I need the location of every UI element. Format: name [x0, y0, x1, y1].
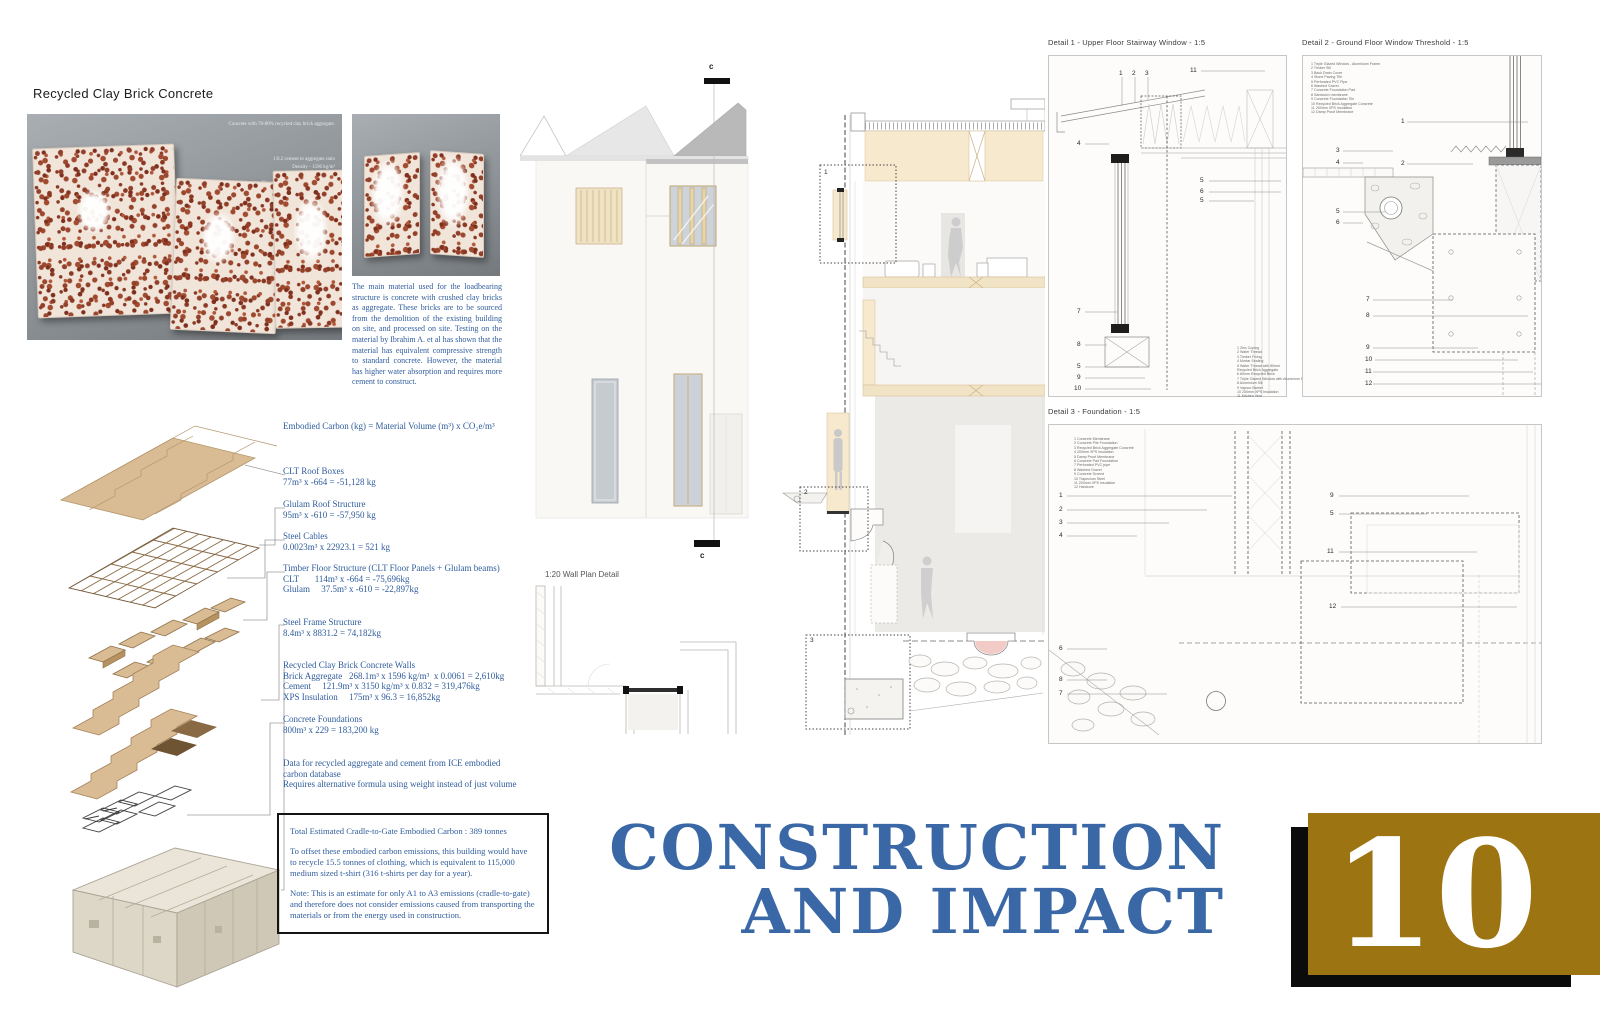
detail1-callout: 4	[1077, 140, 1081, 147]
detail2-callout: 11	[1365, 368, 1372, 375]
carbon-item-label: Concrete Foundations	[283, 714, 543, 725]
wall-plan-label: 1:20 Wall Plan Detail	[545, 570, 619, 579]
detail3-callout: 5	[1330, 510, 1334, 517]
embodied-carbon-formula: Embodied Carbon (kg) = Material Volume (…	[283, 421, 543, 432]
detail2-callout: 5	[1336, 208, 1340, 215]
detail1-callout: 9	[1077, 374, 1081, 381]
embodied-carbon-summary-box: Total Estimated Cradle-to-Gate Embodied …	[277, 813, 549, 934]
detail1-callout: 10	[1074, 385, 1081, 392]
carbon-item-value: CLT 114m³ x -664 = -75,696kg	[283, 574, 543, 585]
building-section-drawing	[775, 95, 1045, 803]
carbon-item-foundations: Concrete Foundations 800m³ x 229 = 183,2…	[283, 714, 543, 735]
carbon-data-note-line: carbon database	[283, 769, 538, 780]
carbon-item-label: Recycled Clay Brick Concrete Walls	[283, 660, 543, 671]
carbon-item-value: 8.4m³ x 8831.2 = 74,182kg	[283, 628, 543, 639]
photo-caption: Concrete with 70-80% recycled clay brick…	[175, 121, 335, 128]
detail3-callout: 4	[1059, 532, 1063, 539]
carbon-item-label: CLT Roof Boxes	[283, 466, 543, 477]
carbon-item-clt-roof: CLT Roof Boxes 77m³ x -664 = -51,128 kg	[283, 466, 543, 487]
detail2-callout: 1	[1401, 118, 1405, 125]
detail2-callout: 2	[1401, 160, 1405, 167]
material-photo-side	[352, 114, 500, 276]
detail2-callout: 3	[1336, 147, 1340, 154]
detail1-title: Detail 1 - Upper Floor Stairway Window -…	[1048, 38, 1205, 47]
detail1-callout: 11	[1190, 67, 1197, 74]
detail1-callout: 1	[1119, 70, 1123, 77]
elevation-drawing	[520, 56, 765, 564]
carbon-item-value: XPS Insulation 175m³ x 96.3 = 16,852kg	[283, 692, 543, 703]
section-callout-1: 1	[824, 169, 828, 176]
detail3-title: Detail 3 - Foundation - 1:5	[1048, 407, 1140, 416]
detail3-callout: 9	[1330, 492, 1334, 499]
detail3-callout: 2	[1059, 506, 1063, 513]
detail2-title: Detail 2 - Ground Floor Window Threshold…	[1302, 38, 1469, 47]
carbon-item-value: 95m³ x -610 = -57,950 kg	[283, 510, 543, 521]
detail1-callout: 3	[1145, 70, 1149, 77]
detail3-legend: 1 Concrete Membrane2 Concrete Pile Found…	[1074, 437, 1189, 490]
carbon-data-note-line: Requires alternative formula using weigh…	[283, 779, 538, 790]
detail3-callout: 8	[1059, 676, 1063, 683]
brick-sample-2	[170, 178, 283, 334]
carbon-item-value: Glulam 37.5m³ x -610 = -22,897kg	[283, 584, 543, 595]
carbon-item-label: Steel Frame Structure	[283, 617, 543, 628]
summary-total: Total Estimated Cradle-to-Gate Embodied …	[290, 826, 536, 837]
carbon-data-note-line: Data for recycled aggregate and cement f…	[283, 758, 538, 769]
carbon-item-timber-floor: Timber Floor Structure (CLT Floor Panels…	[283, 563, 543, 595]
page-title-line2: AND IMPACT	[560, 882, 1225, 942]
page-number-plate: 10	[1308, 813, 1600, 975]
section-callout-3: 3	[810, 637, 814, 644]
section-callout-2: 2	[804, 489, 808, 496]
section-marker-top: c	[709, 62, 713, 71]
carbon-item-value: 77m³ x -664 = -51,128 kg	[283, 477, 543, 488]
detail1-callout: 2	[1132, 70, 1136, 77]
detail3-callout: 1	[1059, 492, 1063, 499]
detail1-callout: 6	[1200, 188, 1204, 195]
carbon-item-value: Brick Aggregate 268.1m³ x 1596 kg/m³ x 0…	[283, 671, 543, 682]
carbon-item-value: Cement 121.9m³ x 3150 kg/m³ x 0.832 = 31…	[283, 681, 543, 692]
carbon-item-label: Timber Floor Structure (CLT Floor Panels…	[283, 563, 543, 574]
brick-sample-1	[32, 144, 180, 319]
detail1-callout: 5	[1200, 177, 1204, 184]
detail2-callout: 6	[1336, 219, 1340, 226]
detail2-callout: 9	[1366, 344, 1370, 351]
carbon-item-value: 0.0023m³ x 22923.1 = 521 kg	[283, 542, 543, 553]
brick-sample-5	[430, 150, 484, 258]
exploded-axonometric-drawing	[55, 420, 285, 990]
section-marker-bottom: c	[700, 551, 704, 560]
detail1-callout: 8	[1077, 341, 1081, 348]
carbon-data-note: Data for recycled aggregate and cement f…	[283, 758, 538, 790]
summary-note: Note: This is an estimate for only A1 to…	[290, 888, 536, 921]
summary-offset: To offset these embodied carbon emission…	[290, 846, 536, 879]
detail2-callout: 12	[1365, 380, 1372, 387]
carbon-item-concrete-walls: Recycled Clay Brick Concrete Walls Brick…	[283, 660, 543, 702]
detail3-callout: 3	[1059, 519, 1063, 526]
detail2-legend: 1 Triple Glazed Window - Aluminium Frame…	[1311, 62, 1411, 115]
photo-spec-ratio: 1:0.2 cement to aggregate ratio	[185, 156, 335, 163]
material-description: The main material used for the loadbeari…	[352, 282, 502, 388]
detail2-callout: 4	[1336, 159, 1340, 166]
detail1-legend: 1 Zinc Coping2 Water Thread 3 Timber Fix…	[1237, 346, 1284, 399]
carbon-item-steel-cables: Steel Cables 0.0023m³ x 22923.1 = 521 kg	[283, 531, 543, 552]
carbon-item-label: Glulam Roof Structure	[283, 499, 543, 510]
carbon-item-glulam-roof: Glulam Roof Structure 95m³ x -610 = -57,…	[283, 499, 543, 520]
detail3-callout: 6	[1059, 645, 1063, 652]
page-number: 10	[1332, 787, 1538, 1002]
detail1-drawing: 1 2 3 11 4 5 6 5 7 8 5 9 10 1 Zinc Copin…	[1048, 55, 1287, 397]
detail1-callout: 7	[1077, 308, 1081, 315]
detail2-callout: 7	[1366, 296, 1370, 303]
page-title-line1: CONSTRUCTION	[560, 818, 1225, 878]
detail1-callout: 5	[1077, 363, 1081, 370]
detail3-callout: 7	[1059, 690, 1063, 697]
detail1-callout: 5	[1200, 197, 1204, 204]
brick-sample-3	[273, 169, 342, 329]
detail3-callout: 11	[1327, 548, 1334, 555]
presentation-board: Recycled Clay Brick Concrete Concrete wi…	[0, 0, 1600, 1029]
wall-plan-drawing	[528, 584, 743, 734]
detail3-drawing: 1 2 3 4 6 8 7 9 5 11 12 1 Concrete Membr…	[1048, 424, 1542, 744]
material-photo-main: Concrete with 70-80% recycled clay brick…	[27, 114, 342, 340]
carbon-item-steel-frame: Steel Frame Structure 8.4m³ x 8831.2 = 7…	[283, 617, 543, 638]
detail2-callout: 8	[1366, 312, 1370, 319]
material-title: Recycled Clay Brick Concrete	[33, 86, 213, 101]
brick-sample-4	[364, 152, 420, 258]
detail2-drawing: 1 3 4 2 5 6 7 8 9 10 11 12 1 Triple Glaz…	[1302, 55, 1542, 397]
carbon-item-label: Steel Cables	[283, 531, 543, 542]
detail1-linework	[1049, 56, 1286, 396]
detail2-callout: 10	[1365, 356, 1372, 363]
carbon-item-value: 800m³ x 229 = 183,200 kg	[283, 725, 543, 736]
detail3-callout: 12	[1329, 603, 1336, 610]
